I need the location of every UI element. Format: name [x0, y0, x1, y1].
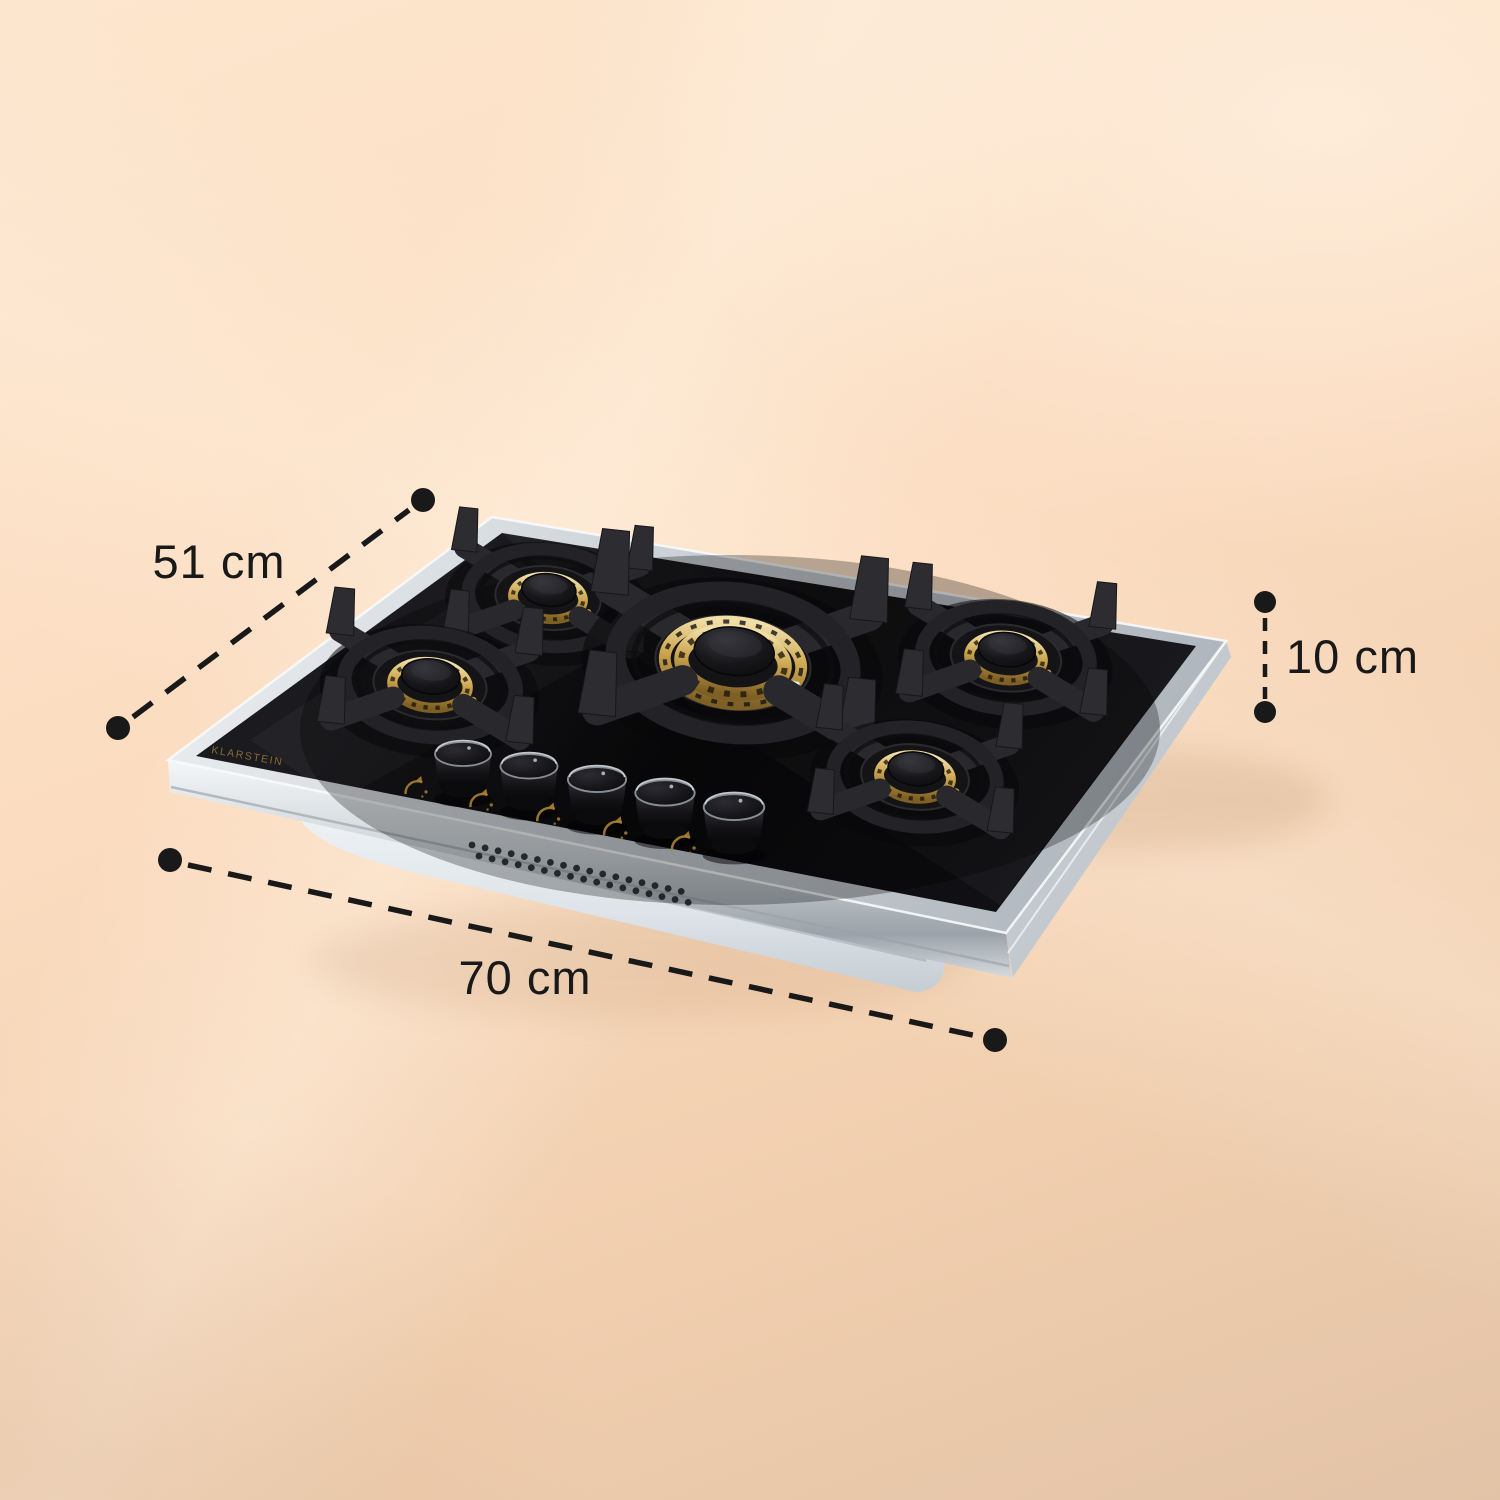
dimension-endpoint-dot — [1254, 701, 1276, 723]
hob: KLARSTEIN — [168, 506, 1330, 1018]
dimension-endpoint-dot — [983, 1028, 1007, 1052]
dimension-endpoint-dot — [158, 848, 182, 872]
knob-marker-dot — [601, 771, 605, 775]
product-dimension-image: KLARSTEIN 51 cm 10 cm 70 cm — [0, 0, 1500, 1500]
dimension-label-height: 10 cm — [1286, 630, 1419, 683]
pan-support-fin — [326, 587, 358, 636]
dimension-label-width: 70 cm — [459, 951, 592, 1004]
knob-top — [568, 767, 626, 792]
knob-marker-dot — [739, 799, 743, 803]
pan-support-fin — [451, 507, 481, 553]
dimension-height: 10 cm — [1254, 591, 1419, 723]
dimension-endpoint-dot — [411, 488, 435, 512]
knob-marker-dot — [467, 746, 471, 750]
knob-top — [500, 754, 557, 778]
dimension-endpoint-dot — [1254, 591, 1276, 613]
knob-top — [435, 742, 491, 766]
knob-top — [704, 794, 764, 820]
knob-marker-dot — [669, 785, 673, 789]
pan-support-fin — [1089, 581, 1120, 629]
hob-illustration: KLARSTEIN 51 cm 10 cm 70 cm — [0, 0, 1500, 1500]
knob-top — [635, 780, 694, 805]
dimension-endpoint-dot — [106, 716, 130, 740]
knob-marker-dot — [533, 758, 537, 762]
dimension-label-depth: 51 cm — [153, 535, 286, 588]
pan-support-fin — [627, 525, 657, 571]
knob-base — [711, 838, 756, 854]
pan-support-fin — [905, 562, 936, 610]
